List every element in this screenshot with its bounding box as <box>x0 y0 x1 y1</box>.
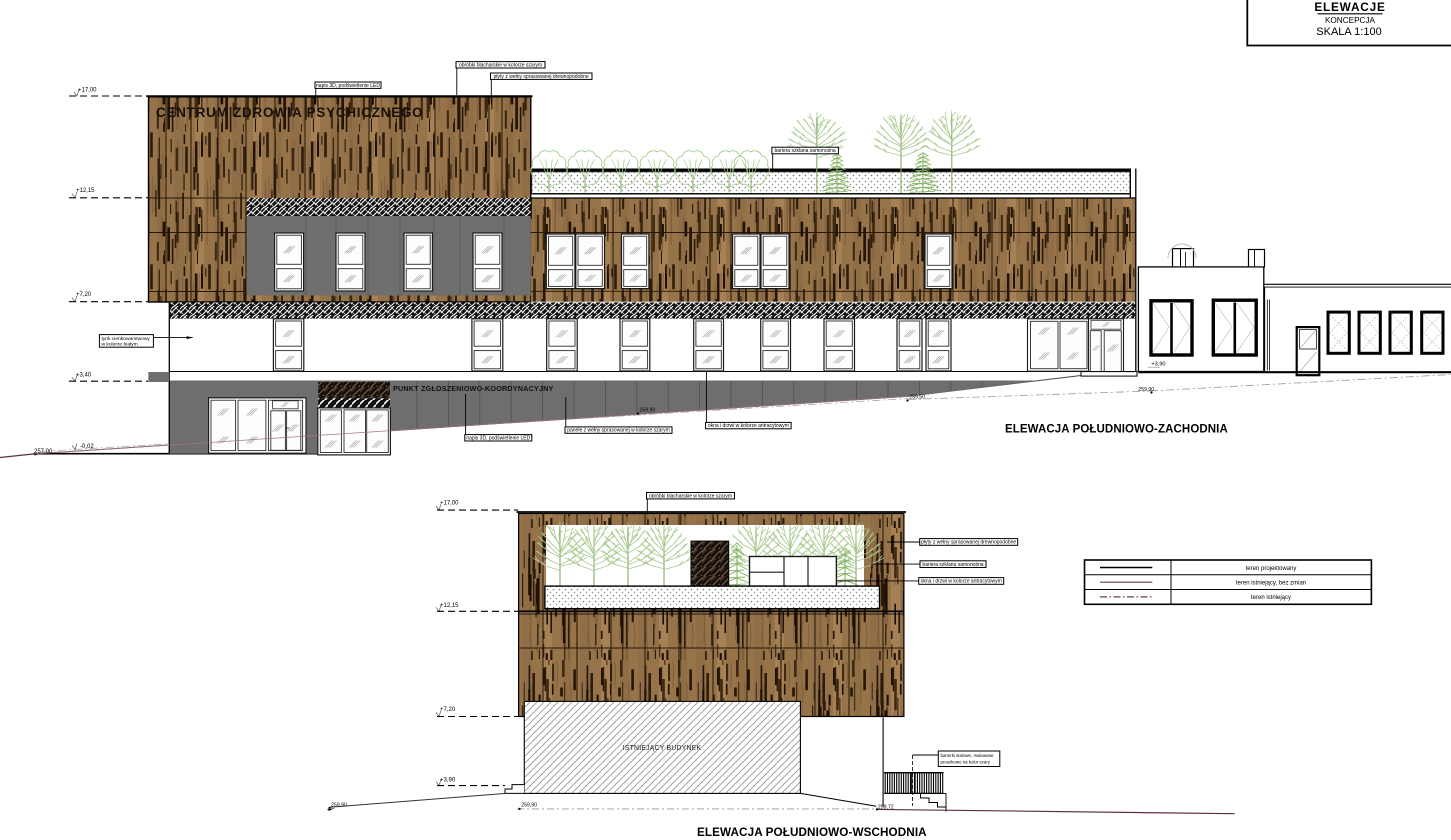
svg-text:tynk cienkowarstwowy: tynk cienkowarstwowy <box>102 336 151 342</box>
svg-text:teren projektowany: teren projektowany <box>1246 566 1297 572</box>
svg-text:+3,90: +3,90 <box>440 778 456 784</box>
svg-text:CENTRUM ZDROWIA PSYCHICZNEGO: CENTRUM ZDROWIA PSYCHICZNEGO <box>156 105 423 120</box>
svg-text:barierki stalowe, malowane: barierki stalowe, malowane <box>941 753 995 758</box>
svg-text:+3,40: +3,40 <box>76 372 92 378</box>
svg-text:bariera szklana samonośna: bariera szklana samonośna <box>775 148 836 154</box>
svg-text:KONCEPCJA: KONCEPCJA <box>1325 16 1376 25</box>
svg-text:ELEWACJA POŁUDNIOWO-ZACHODNIA: ELEWACJA POŁUDNIOWO-ZACHODNIA <box>1005 423 1228 435</box>
svg-text:+7,20: +7,20 <box>440 707 456 713</box>
svg-text:259,72: 259,72 <box>878 805 894 811</box>
svg-text:obróbki blacharskie w kolorze: obróbki blacharskie w kolorze szarym <box>649 493 732 499</box>
svg-text:proszkowo na kolor szary: proszkowo na kolor szary <box>941 760 991 765</box>
svg-text:259,50: 259,50 <box>909 395 925 401</box>
svg-text:napis 3D, podświetlenie LED: napis 3D, podświetlenie LED <box>316 83 380 89</box>
svg-text:w kolorze białym: w kolorze białym <box>102 342 138 348</box>
svg-text:259,90: 259,90 <box>331 803 347 809</box>
svg-text:259,90: 259,90 <box>639 407 655 413</box>
svg-text:ELEWACJA POŁUDNIOWO-WSCHODNIA: ELEWACJA POŁUDNIOWO-WSCHODNIA <box>697 826 927 839</box>
svg-text:PUNKT ZGŁOSZENIOWO-KOORDYNACYJ: PUNKT ZGŁOSZENIOWO-KOORDYNACYJNY <box>393 384 554 393</box>
svg-text:257,00: 257,00 <box>34 449 53 455</box>
svg-text:+12,15: +12,15 <box>76 188 95 194</box>
svg-text:ELEWACJE: ELEWACJE <box>1314 0 1385 14</box>
svg-text:płyty z wełny sprasowanej drew: płyty z wełny sprasowanej drewnopodobne <box>494 74 589 80</box>
svg-text:płyty z wełny sprasowanej drew: płyty z wełny sprasowanej drewnopodobne <box>921 540 1016 546</box>
svg-text:teren istniejący, bez zmian: teren istniejący, bez zmian <box>1236 581 1306 587</box>
svg-text:+17,00: +17,00 <box>440 501 459 507</box>
svg-text:259,90: 259,90 <box>521 803 537 809</box>
svg-text:+3,90: +3,90 <box>1151 362 1165 368</box>
svg-text:panele z wełny sprasowanej w k: panele z wełny sprasowanej w kolorze sza… <box>567 428 670 434</box>
svg-text:+7,20: +7,20 <box>76 292 92 298</box>
svg-text:ISTNIEJĄCY BUDYNEK: ISTNIEJĄCY BUDYNEK <box>623 745 702 752</box>
svg-text:bariera szklana samonośna: bariera szklana samonośna <box>922 562 983 568</box>
svg-text:+12,15: +12,15 <box>440 603 459 609</box>
svg-text:okna i drzwi w kolorze antracy: okna i drzwi w kolorze antracytowym <box>921 579 1002 585</box>
svg-text:okna i drzwi w kolorze antracy: okna i drzwi w kolorze antracytowym <box>708 423 789 429</box>
svg-text:napis 3D, podświetlenie LED: napis 3D, podświetlenie LED <box>466 435 530 441</box>
svg-text:-0,02: -0,02 <box>80 444 94 450</box>
svg-text:obróbki blacharskie w kolorze: obróbki blacharskie w kolorze szarym <box>459 62 542 68</box>
svg-text:SKALA 1:100: SKALA 1:100 <box>1316 26 1381 38</box>
svg-text:+17,00: +17,00 <box>78 88 97 94</box>
svg-text:teren istniejący: teren istniejący <box>1251 595 1291 601</box>
